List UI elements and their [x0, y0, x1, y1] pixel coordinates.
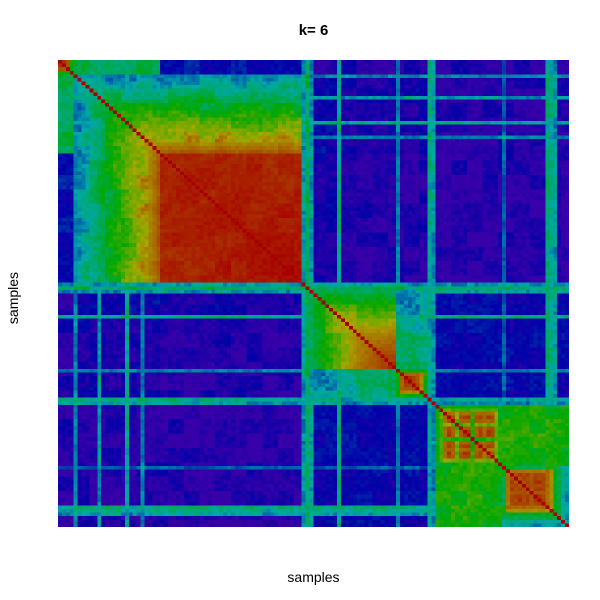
y-axis-label: samples — [5, 272, 21, 324]
x-axis-label: samples — [58, 569, 569, 585]
consensus-matrix-figure: k= 6 samples samples — [0, 0, 600, 600]
consensus-heatmap — [58, 60, 569, 527]
chart-title: k= 6 — [58, 22, 569, 39]
